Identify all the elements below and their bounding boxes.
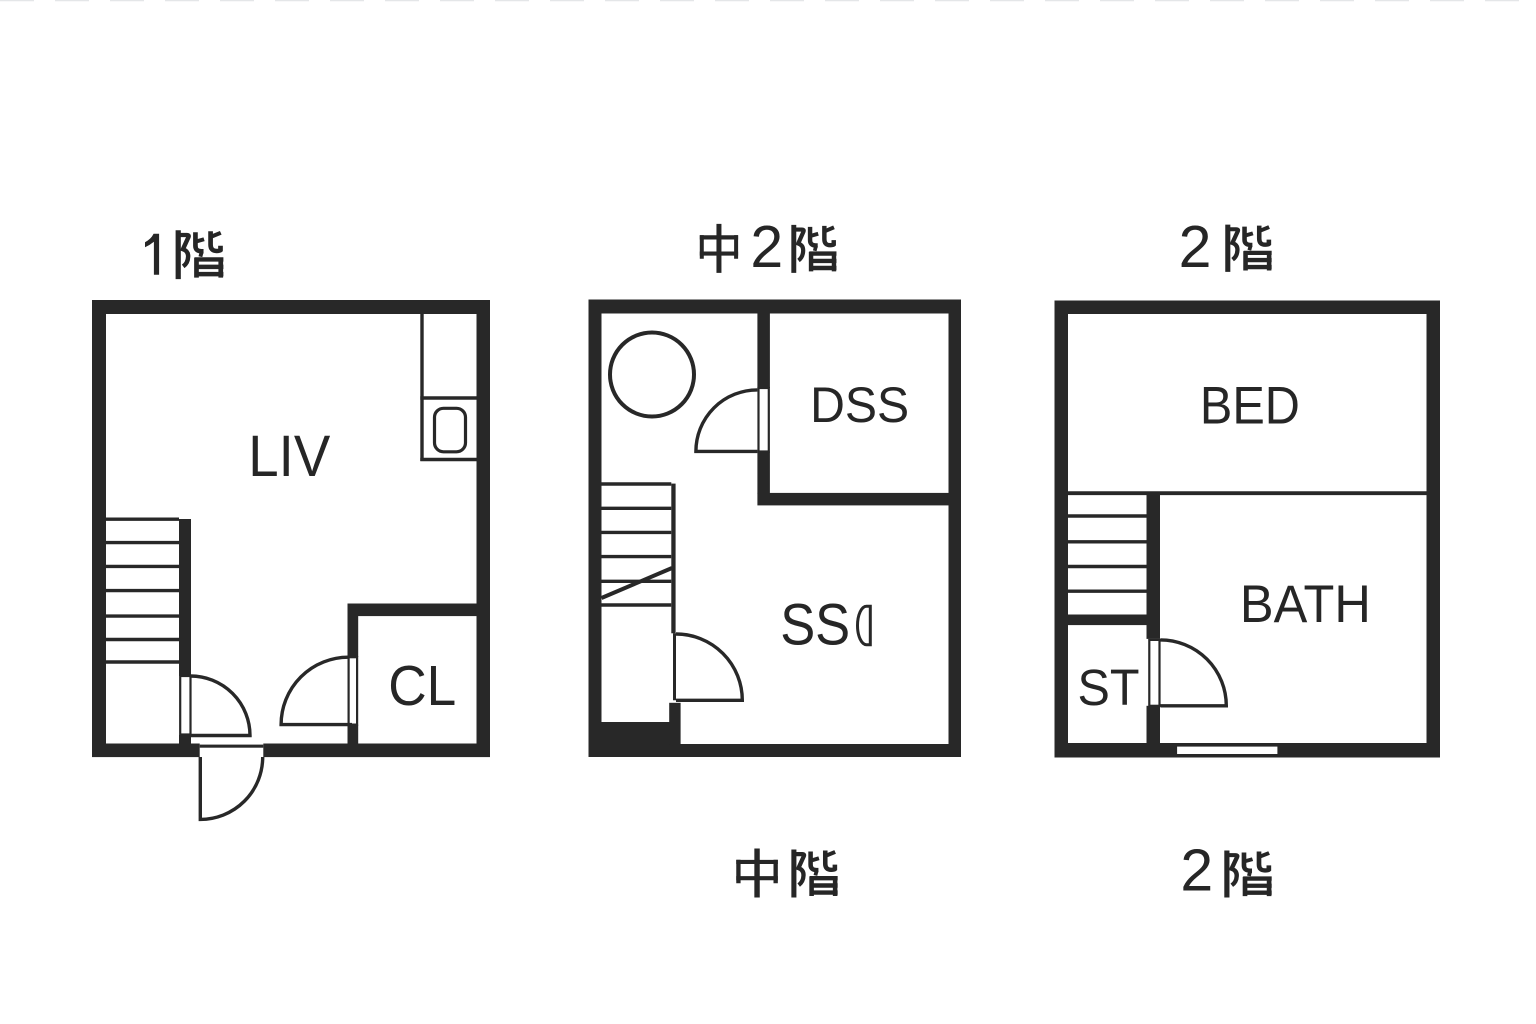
svg-text:2: 2 <box>1179 214 1212 280</box>
svg-text:2: 2 <box>750 214 783 280</box>
svg-text:2: 2 <box>1180 838 1213 904</box>
svg-text:DSS: DSS <box>810 377 909 433</box>
svg-text:LIV: LIV <box>248 424 330 489</box>
svg-text:SS: SS <box>780 593 850 658</box>
svg-text:CL: CL <box>388 654 456 718</box>
svg-text:ST: ST <box>1078 659 1140 716</box>
svg-text:BED: BED <box>1200 376 1300 435</box>
svg-text:BATH: BATH <box>1240 575 1371 634</box>
